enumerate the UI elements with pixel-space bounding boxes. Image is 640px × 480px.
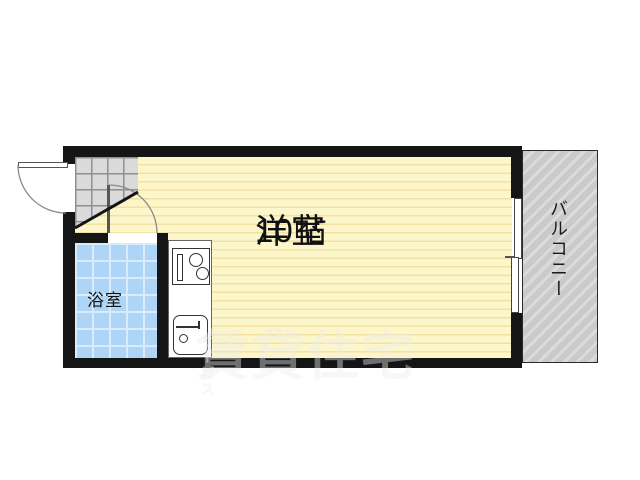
watermark-main-text: 賃貸住宅 xyxy=(196,329,416,385)
bathroom-area: 浴室 xyxy=(75,243,158,358)
wall-kitchen-divider xyxy=(157,233,168,358)
window-panel-upper xyxy=(514,198,522,259)
entry-door-swing-arc xyxy=(18,165,66,213)
watermark-suffix-text: サービス xyxy=(196,333,217,397)
stove-burner-icon xyxy=(196,267,209,280)
balcony-area: バルコニー xyxy=(522,150,598,363)
wall-top xyxy=(63,146,522,157)
main-room-size: 10帖 xyxy=(255,214,328,249)
sink-drain-icon xyxy=(179,334,188,343)
balcony-label: バルコニー xyxy=(545,199,571,329)
stove-icon xyxy=(172,248,210,285)
window-meeting-tick xyxy=(505,256,514,258)
bathroom-door-threshold xyxy=(108,233,157,243)
floorplan-canvas: 浴室 バルコニー 洋室 10帖 xyxy=(0,0,640,480)
bathroom-door-panel xyxy=(107,185,110,233)
wall-right-upper xyxy=(511,146,522,198)
entry-door-panel xyxy=(18,162,68,168)
wall-bathroom-top xyxy=(63,233,108,243)
wall-right-lower xyxy=(511,313,522,368)
window-panel-lower xyxy=(511,257,519,313)
watermark: 賃貸住宅 サービス xyxy=(196,329,456,399)
grill-icon xyxy=(177,254,183,281)
stove-burner-icon xyxy=(189,253,203,267)
bathroom-label: 浴室 xyxy=(87,286,123,311)
